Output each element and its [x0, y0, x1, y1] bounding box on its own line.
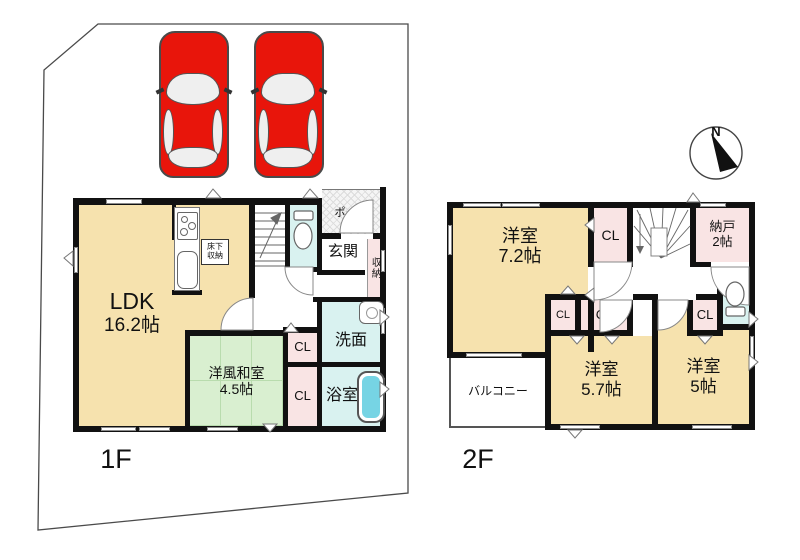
senmen-label: 洗面: [335, 332, 367, 350]
wall: [588, 300, 594, 352]
wall: [73, 198, 79, 432]
car-mirror: [224, 87, 233, 94]
bedroom1-size: 7.2帖: [498, 246, 541, 266]
wall: [749, 202, 755, 430]
wall: [575, 300, 581, 330]
car-rear-window: [168, 147, 218, 168]
wall: [696, 294, 723, 300]
wall: [545, 294, 600, 300]
room-ldk-lower: [79, 333, 185, 426]
sink-icon: [177, 251, 198, 289]
room-closet-lower-1f: CL: [288, 367, 317, 426]
floor1-text: 1F: [100, 444, 132, 474]
ldk-label-block: LDK 16.2帖: [80, 286, 184, 340]
window: [106, 199, 142, 204]
car-icon: [254, 31, 324, 178]
sink-bowl: [366, 307, 378, 319]
wall: [687, 300, 693, 330]
underfloor-line2: 収納: [207, 252, 223, 261]
room-porch: ポーチ: [322, 189, 380, 234]
wall: [322, 362, 380, 367]
car-windshield: [166, 73, 220, 105]
room-washitsu: 洋風和室 4.5帖: [190, 336, 283, 426]
wall: [185, 330, 288, 336]
closet-label: CL: [294, 389, 311, 404]
wall: [690, 262, 711, 267]
room-bedroom-5-entry: [658, 300, 687, 330]
closet-label: CL: [596, 308, 613, 323]
room-closet-upper-1f: CL: [288, 333, 317, 362]
closet-label: CL: [556, 309, 570, 322]
room-toilet-1f: [290, 205, 317, 267]
bathtub-icon: [357, 371, 385, 423]
stairs-icon: [255, 213, 285, 266]
wall: [687, 330, 723, 336]
window: [692, 425, 732, 429]
bedroom1-name: 洋室: [502, 226, 538, 246]
wall: [690, 208, 696, 267]
window: [750, 336, 754, 360]
north-text: N: [711, 125, 720, 140]
closet-label: CL: [294, 340, 311, 355]
car-mirror: [156, 87, 165, 94]
car-icon: [159, 31, 229, 178]
room-bedroom-5: 洋室 5帖: [658, 330, 749, 424]
car-side-window: [307, 109, 318, 155]
washitsu-name: 洋風和室: [209, 365, 265, 381]
stove-burner: [180, 228, 188, 236]
bedroom3-name: 洋室: [687, 357, 721, 377]
stove-burner: [188, 222, 196, 230]
car-mirror: [251, 87, 260, 94]
wall: [283, 327, 317, 333]
window: [207, 427, 238, 431]
genkan-label: 玄関: [318, 241, 368, 263]
bedroom2-name: 洋室: [585, 360, 619, 380]
wall: [373, 233, 380, 239]
wall: [283, 327, 288, 426]
window: [139, 427, 170, 431]
window: [448, 225, 452, 255]
bedroom2-size: 5.7帖: [581, 380, 622, 400]
storage-label: 収納: [369, 257, 381, 279]
wall: [249, 205, 255, 298]
bedroom3-size: 5帖: [690, 377, 716, 397]
window: [466, 353, 522, 357]
car-side-window: [258, 109, 269, 155]
floor1-label: 1F: [86, 442, 146, 476]
room-nando: 納戸 2帖: [696, 208, 749, 262]
compass-north-label: N: [706, 124, 726, 140]
car-mirror: [319, 87, 328, 94]
balcony-label: バルコニー: [468, 385, 528, 399]
wall: [285, 205, 290, 267]
window: [502, 203, 540, 207]
car-windshield: [261, 73, 315, 105]
car-side-window: [163, 109, 174, 155]
underfloor-storage-box: 床下 収納: [201, 239, 229, 265]
bedroom1-label-block: 洋室 7.2帖: [470, 222, 570, 270]
washitsu-size: 4.5帖: [220, 381, 253, 397]
window: [381, 250, 385, 272]
window: [560, 425, 600, 429]
wall: [545, 294, 551, 424]
floor2-text: 2F: [462, 444, 494, 474]
window: [74, 247, 78, 273]
floor-plan-page: ポーチ 収納 洗面 浴室 CL CL 洋風和室 4.5帖: [0, 0, 800, 560]
stairs-icon: [634, 208, 690, 258]
wall: [545, 330, 633, 336]
bathtub-water: [362, 376, 380, 418]
room-storage: 収納: [367, 239, 381, 297]
bath-label: 浴室: [326, 387, 358, 405]
porch-label: ポーチ: [335, 207, 368, 220]
wall: [588, 208, 594, 266]
nando-size: 2帖: [712, 235, 732, 250]
wall: [627, 208, 633, 267]
ldk-name: LDK: [110, 289, 155, 315]
closet-label: CL: [602, 227, 620, 243]
wall: [317, 270, 365, 275]
window: [101, 427, 136, 431]
room-balcony: バルコニー: [449, 358, 545, 428]
room-closet-top-2f: CL: [594, 208, 627, 262]
window: [700, 203, 726, 207]
room-closet-a: CL: [551, 300, 575, 330]
ldk-size: 16.2帖: [104, 315, 160, 336]
sink-icon: [359, 301, 384, 324]
room-closet-c: CL: [693, 300, 717, 330]
window: [463, 203, 501, 207]
nando-name: 納戸: [709, 220, 735, 235]
wall: [185, 330, 190, 426]
genkan-text: 玄関: [328, 244, 358, 261]
floor2-label: 2F: [448, 442, 508, 476]
room-toilet-2f: [723, 267, 749, 324]
car-side-window: [212, 109, 223, 155]
stove-burner: [181, 216, 188, 223]
closet-label: CL: [697, 308, 714, 323]
car-rear-window: [263, 147, 313, 168]
wall: [652, 300, 658, 424]
room-bedroom-5_7: 洋室 5.7帖: [551, 336, 652, 424]
wall: [283, 362, 317, 367]
wall: [627, 300, 633, 330]
